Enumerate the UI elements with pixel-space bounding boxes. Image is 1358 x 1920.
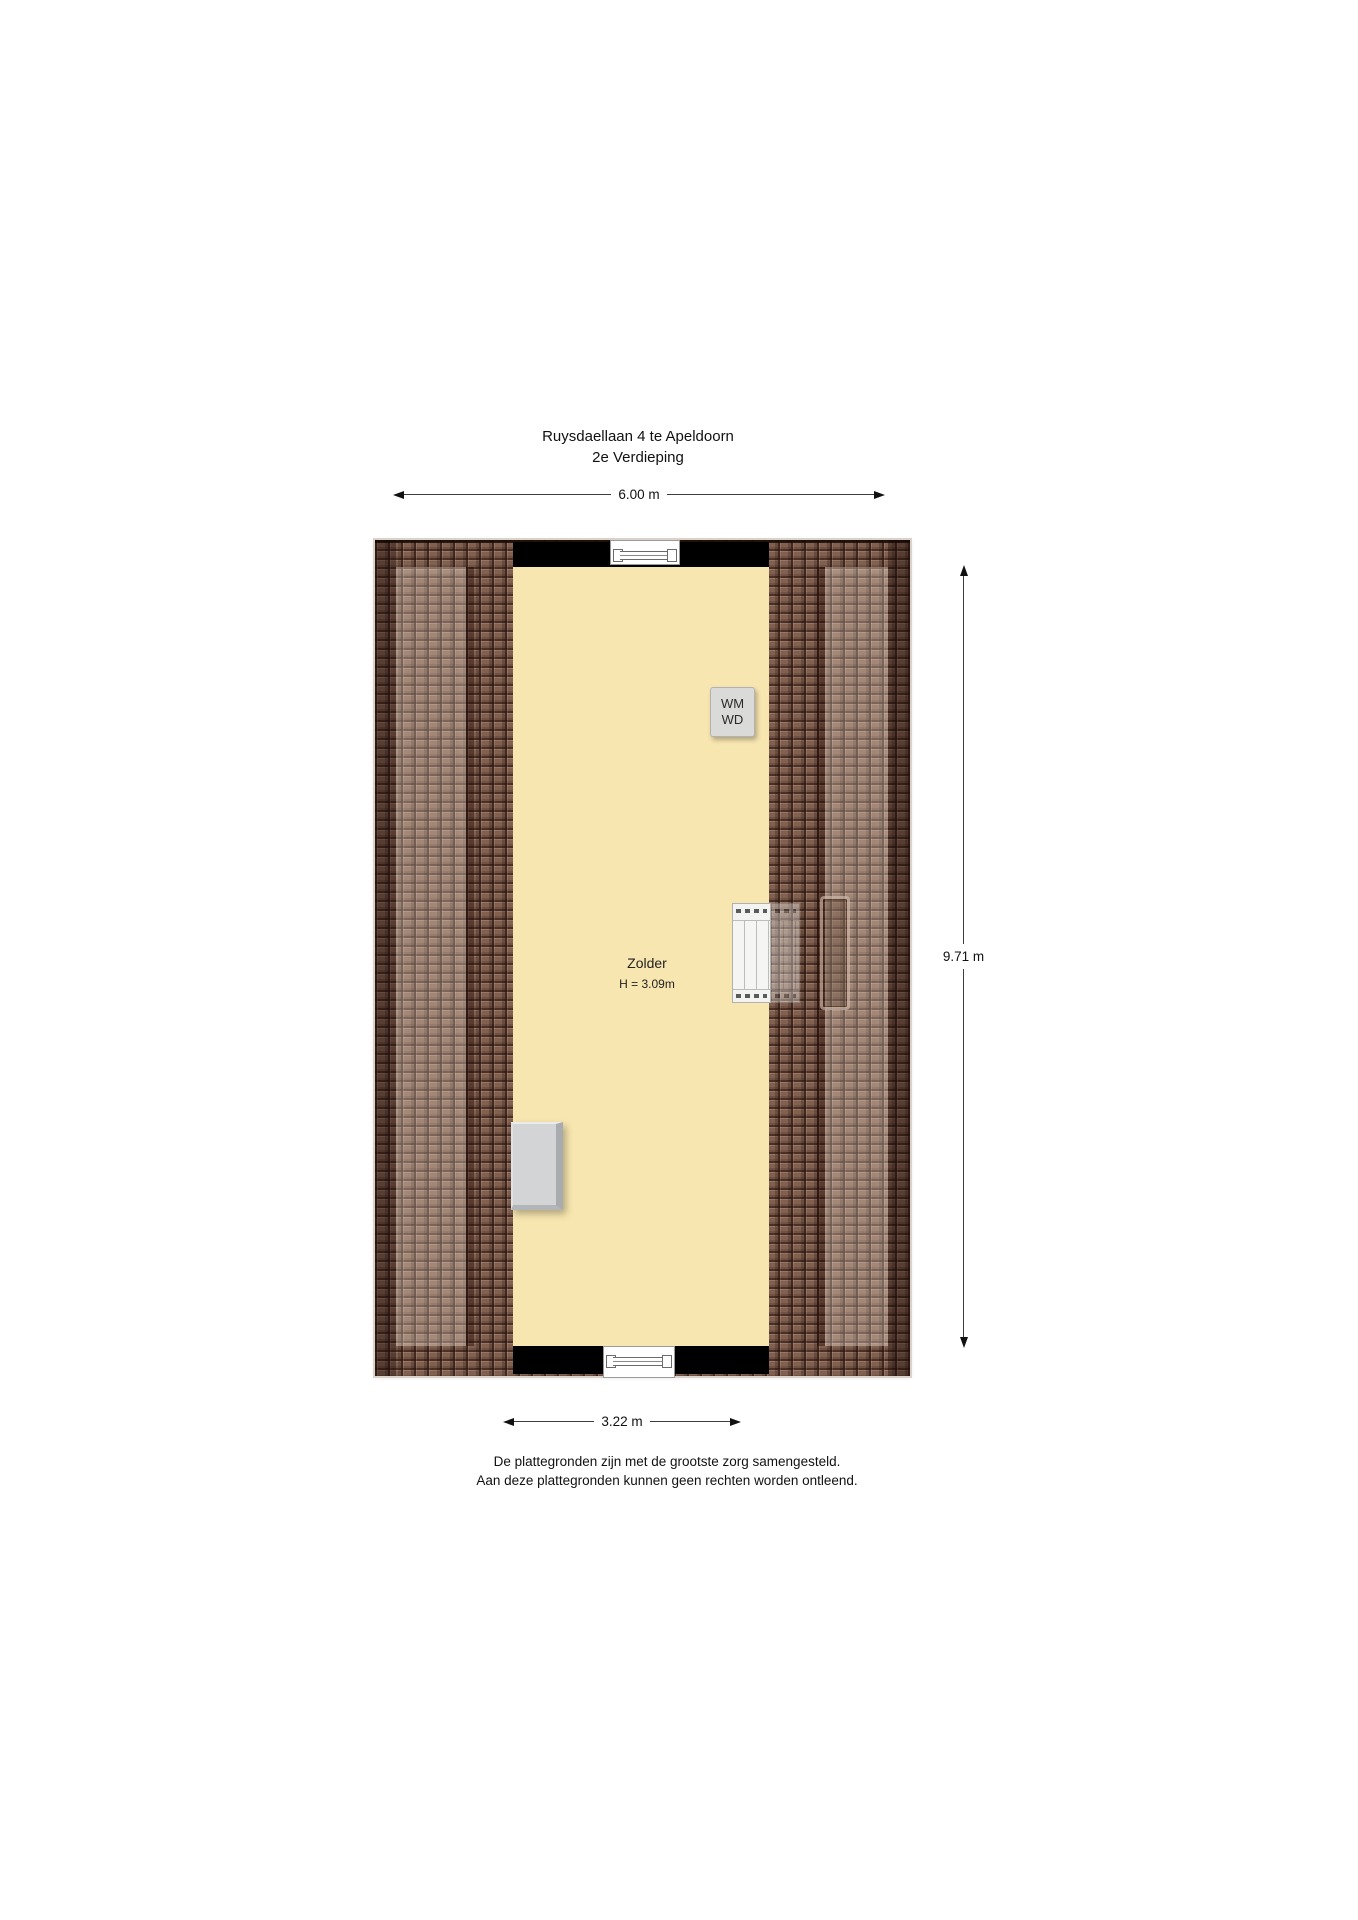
roof-window xyxy=(820,896,850,1010)
radiator-under-roof xyxy=(771,903,800,1003)
floor-plan: WM WD Zolder H = 3.09m xyxy=(375,540,910,1376)
dimension-depth-right: 9.71 m xyxy=(955,565,972,1348)
roof-break-line-left xyxy=(466,567,474,1346)
roof-eave-left xyxy=(375,540,396,1376)
page-title: Ruysdaellaan 4 te Apeldoorn 2e Verdiepin… xyxy=(338,426,938,468)
title-floor: 2e Verdieping xyxy=(338,447,938,468)
dimension-top-label: 6.00 m xyxy=(611,487,666,502)
dimension-line xyxy=(667,494,874,495)
dimension-width-top: 6.00 m xyxy=(393,486,885,503)
dimension-line xyxy=(650,1421,730,1422)
dimension-line xyxy=(404,494,611,495)
dryer-label: WD xyxy=(722,712,744,728)
arrow-left-icon xyxy=(393,491,404,499)
disclaimer-line-2: Aan deze plattegronden kunnen geen recht… xyxy=(317,1471,1017,1490)
dimension-right-label: 9.71 m xyxy=(943,944,984,969)
arrow-down-icon xyxy=(960,1337,968,1348)
washer-label: WM xyxy=(721,696,744,712)
dimension-bottom-label: 3.22 m xyxy=(594,1414,649,1429)
radiator-valve-row xyxy=(736,909,767,913)
disclaimer: De plattegronden zijn met de grootste zo… xyxy=(317,1452,1017,1490)
window-bottom xyxy=(603,1346,675,1378)
window-glass xyxy=(620,551,670,560)
dimension-line xyxy=(963,969,964,1337)
title-address: Ruysdaellaan 4 te Apeldoorn xyxy=(338,426,938,447)
window-jamb xyxy=(662,1355,672,1368)
dimension-width-bottom: 3.22 m xyxy=(503,1413,741,1430)
window-top xyxy=(610,540,680,565)
radiator-valve-row xyxy=(736,994,767,998)
window-jamb xyxy=(667,549,677,562)
arrow-left-icon xyxy=(503,1418,514,1426)
room-label: Zolder H = 3.09m xyxy=(527,953,767,992)
window-glass xyxy=(613,1357,665,1366)
dimension-line xyxy=(514,1421,594,1422)
radiator-valve-row xyxy=(775,909,796,913)
floor-plan-page: Ruysdaellaan 4 te Apeldoorn 2e Verdiepin… xyxy=(0,0,1358,1920)
roof-eave-right xyxy=(888,540,910,1376)
dimension-line xyxy=(963,576,964,944)
storage-unit xyxy=(511,1122,563,1210)
arrow-up-icon xyxy=(960,565,968,576)
disclaimer-line-1: De plattegronden zijn met de grootste zo… xyxy=(317,1452,1017,1471)
radiator-fins xyxy=(772,920,799,990)
room-height-label: H = 3.09m xyxy=(527,976,767,992)
arrow-right-icon xyxy=(874,491,885,499)
arrow-right-icon xyxy=(730,1418,741,1426)
room-name: Zolder xyxy=(527,953,767,973)
roof-slope-left xyxy=(396,567,466,1346)
radiator-valve-row xyxy=(775,994,796,998)
washer-dryer-unit: WM WD xyxy=(710,687,755,737)
